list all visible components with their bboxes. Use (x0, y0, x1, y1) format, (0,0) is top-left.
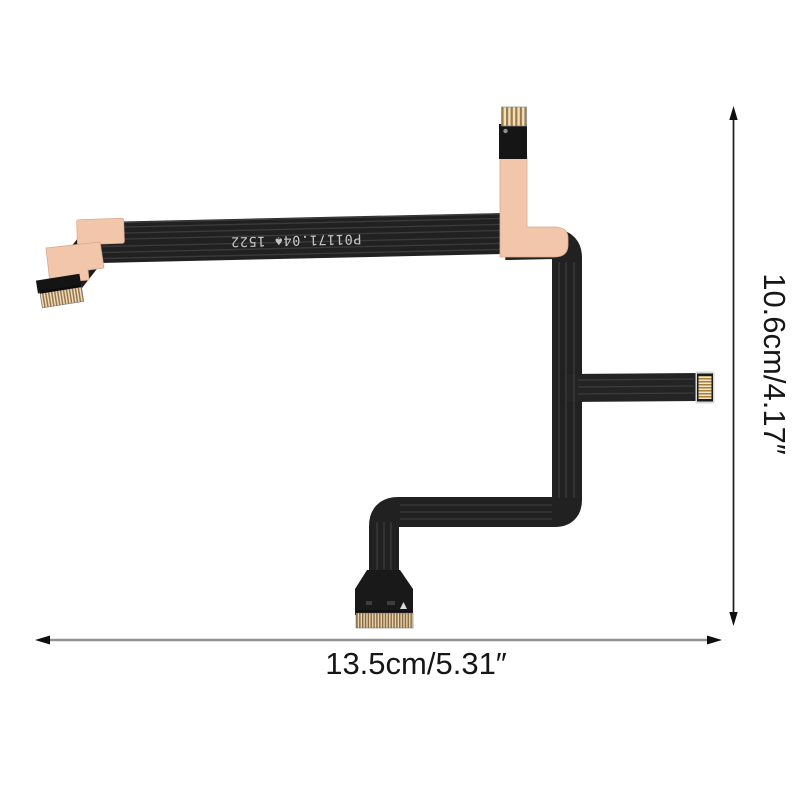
down-arrow-icon (729, 612, 737, 626)
bottom-connector-speck (366, 601, 372, 605)
ribbon-main-run (384, 244, 567, 585)
product-photo-svg: P01171.04♠ 1522 (0, 0, 800, 800)
right-arrow-icon (707, 636, 722, 645)
bottom-connector-pins (356, 613, 413, 628)
height-dimension-label: 10.6cm/4.17″ (757, 273, 792, 455)
right-connector-pins (699, 376, 712, 399)
flex-cable: P01171.04♠ 1522 (36, 107, 715, 628)
product-photo: P01171.04♠ 1522 (0, 0, 800, 800)
stiffener-top-branch (500, 157, 568, 257)
top-connector (499, 107, 527, 159)
top-connector-hole (503, 129, 507, 133)
width-dimension-label: 13.5cm/5.31″ (325, 646, 507, 681)
height-dimension: 10.6cm/4.17″ (729, 106, 792, 626)
stiffener-left-upper (77, 218, 125, 245)
top-connector-pins (502, 107, 527, 126)
bottom-connector (355, 570, 413, 628)
left-arrow-icon (35, 636, 50, 645)
ribbon-marking-text: P01171.04♠ 1522 (230, 231, 361, 250)
bottom-connector-speck (387, 601, 395, 605)
up-arrow-icon (729, 106, 737, 120)
top-connector-body (499, 124, 527, 159)
left-connector (36, 274, 84, 309)
right-connector (696, 372, 715, 404)
width-dimension: 13.5cm/5.31″ (35, 636, 722, 682)
